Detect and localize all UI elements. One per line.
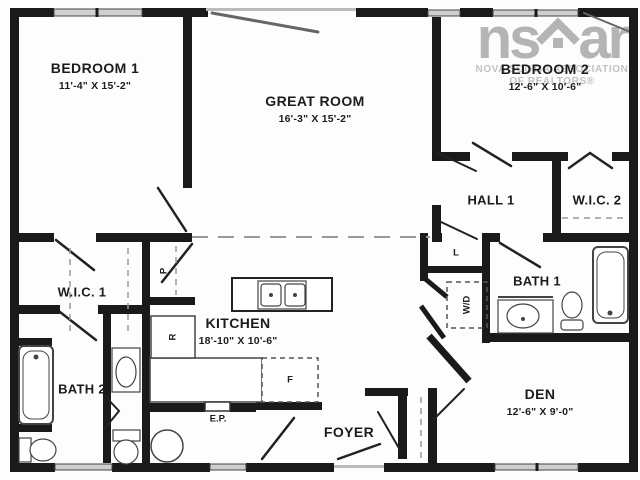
wall <box>18 305 60 314</box>
toilet-tank <box>113 430 140 441</box>
room-label-bath1: BATH 1 <box>513 274 561 289</box>
sink-drain <box>522 318 525 321</box>
wall <box>420 233 428 281</box>
room-dims-kitchen: 18'-10" X 10'-6" <box>199 335 278 347</box>
door-leaf-wic1 <box>56 240 94 270</box>
bathtub-inner <box>597 252 624 318</box>
wall-angled <box>423 277 447 297</box>
room-label-bedroom1: BEDROOM 1 <box>51 60 139 76</box>
window <box>428 10 460 16</box>
label-furnace: F <box>287 375 293 386</box>
wall <box>432 233 442 242</box>
tub-drain <box>34 355 38 359</box>
door-leaf-foyer-closet <box>378 412 400 450</box>
toilet-bowl <box>562 292 582 318</box>
wall <box>96 233 192 242</box>
wall <box>18 424 52 432</box>
label-refrigerator: R <box>168 334 179 341</box>
floor-plan: ns ar NOVA SCOTIA ASSOCIATION OF REALTOR… <box>0 0 640 480</box>
electrical-panel <box>205 402 230 411</box>
wall <box>384 463 495 472</box>
wall <box>142 8 208 17</box>
wall <box>230 403 256 412</box>
room-label-kitchen: KITCHEN <box>205 315 270 331</box>
patio-door-leaf <box>212 13 318 32</box>
wall <box>486 333 629 342</box>
sink-bath1 <box>507 304 539 328</box>
door-leaf-den <box>434 389 464 419</box>
label-linen: L <box>453 248 459 259</box>
door-leaf-entry <box>338 444 380 459</box>
wall <box>428 388 437 464</box>
entry-door-threshold <box>334 465 384 468</box>
label-pantry: P <box>159 268 170 274</box>
bifold-door-wic2 <box>569 153 612 168</box>
patio-door-track <box>206 8 356 11</box>
door-leaf-bath2 <box>60 312 96 340</box>
label-washer-dryer: W/D <box>462 296 473 314</box>
room-label-foyer: FOYER <box>324 424 374 440</box>
window <box>210 464 246 470</box>
wall <box>18 233 54 242</box>
wall <box>482 233 490 343</box>
room-dims-den: 12'-6" X 9'-0" <box>507 406 574 418</box>
wall <box>552 161 561 233</box>
room-label-great-room: GREAT ROOM <box>265 93 364 109</box>
wall-angled <box>421 306 444 338</box>
tub-drain <box>608 311 612 315</box>
door-leaf-linen <box>441 222 477 239</box>
toilet-bowl <box>114 440 138 464</box>
room-dims-bedroom1: 11'-4" X 15'-2" <box>59 80 131 92</box>
wall <box>10 8 19 472</box>
wall <box>512 152 568 161</box>
toilet-base <box>561 320 583 330</box>
bathtub-inner <box>23 351 49 419</box>
toilet-tank <box>19 438 31 462</box>
room-dims-great-room: 16'-3" X 15'-2" <box>279 113 352 125</box>
door-leaf-pantry <box>162 244 192 282</box>
wall <box>543 233 629 242</box>
angled-walls <box>421 277 469 381</box>
wall <box>612 152 629 161</box>
sink-drain <box>294 294 297 297</box>
wall <box>142 403 205 412</box>
wall <box>432 205 441 233</box>
door-leaf-bedroom1 <box>158 188 186 231</box>
wall <box>183 17 192 188</box>
wall-angled <box>429 336 469 381</box>
wall <box>98 305 144 314</box>
wall <box>142 241 150 303</box>
window <box>55 464 112 470</box>
room-label-hall1: HALL 1 <box>467 193 514 208</box>
kitchen-counter <box>150 358 262 402</box>
room-label-wic2: W.I.C. 2 <box>573 193 622 208</box>
room-label-bath2: BATH 2 <box>58 382 106 397</box>
wall <box>18 338 52 346</box>
sink-drain <box>270 294 273 297</box>
wall <box>460 8 493 17</box>
walls <box>10 8 638 472</box>
wall <box>432 17 441 152</box>
sink-bath2 <box>116 357 136 387</box>
wall <box>256 402 322 410</box>
water-tank <box>151 430 183 462</box>
wall <box>142 301 150 463</box>
wall <box>246 463 334 472</box>
toilet-bowl <box>30 439 56 461</box>
room-label-bedroom2: BEDROOM 2 <box>501 61 589 77</box>
door-leaf-bath1 <box>500 243 540 267</box>
wall <box>428 266 482 273</box>
room-label-den: DEN <box>525 386 556 402</box>
room-label-wic1: W.I.C. 1 <box>58 285 107 300</box>
label-electrical-panel: E.P. <box>210 414 227 425</box>
wall <box>356 8 428 17</box>
door-leaf-kitchen <box>262 418 294 459</box>
door-leaf-bedroom2 <box>473 143 511 166</box>
wall <box>629 8 638 472</box>
room-dims-bedroom2: 12'-6" X 10'-6" <box>509 81 582 93</box>
